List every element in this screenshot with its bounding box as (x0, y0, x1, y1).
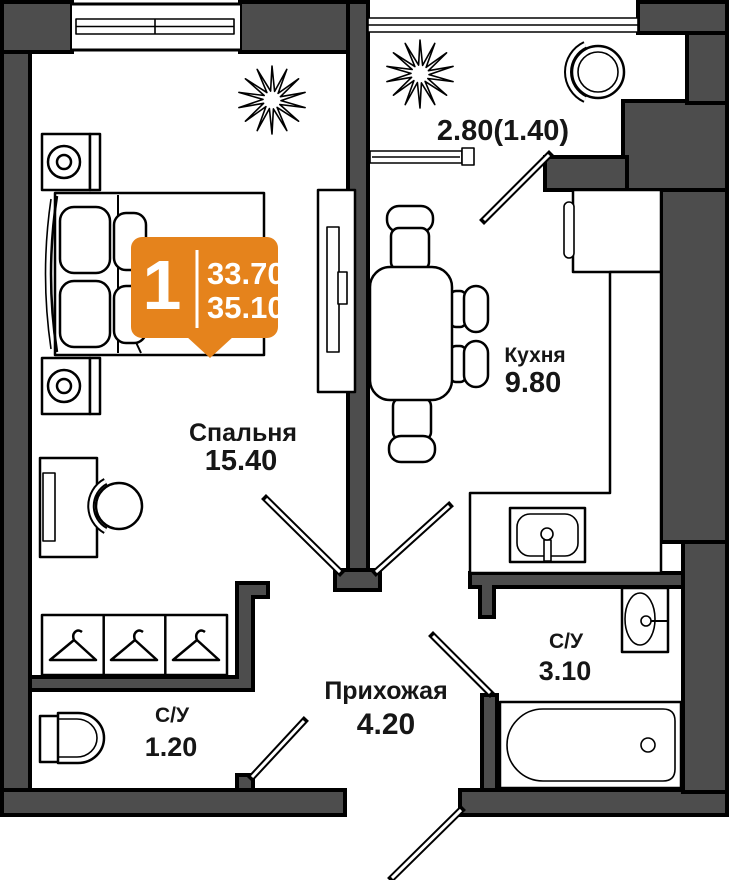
faucet (641, 616, 651, 626)
badge-area-2: 35.10 (207, 290, 285, 325)
room-label-kitchen: Кухня (504, 344, 565, 367)
balcony-door-leaf (484, 155, 549, 220)
plant-icon (387, 40, 453, 108)
wall-segment (661, 188, 727, 542)
bedroom-window (72, 4, 240, 50)
badge-rooms-count: 1 (143, 246, 182, 324)
chair (389, 436, 435, 462)
bathtub (500, 702, 681, 788)
badge-divider (196, 250, 199, 328)
dining-table-set (370, 206, 488, 462)
room-area-balcony: 2.80(1.40) (437, 115, 569, 147)
wall-segment (683, 540, 727, 792)
wall-segment (2, 790, 345, 815)
wall-segment (2, 2, 72, 52)
room-area-hallway: 4.20 (357, 708, 415, 741)
floor-plan: Спальня 15.40 Кухня 9.80 2.80(1.40) С/У … (0, 0, 731, 880)
wall-segment (687, 31, 727, 103)
kitchen-door-leaf (376, 506, 449, 572)
floor-plan-canvas: Спальня 15.40 Кухня 9.80 2.80(1.40) С/У … (0, 0, 731, 880)
room-label-hallway: Прихожая (324, 677, 447, 705)
fridge-handle (564, 202, 574, 258)
balcony-sill (370, 148, 474, 165)
wall-segment (545, 157, 627, 190)
room-area-bedroom: 15.40 (205, 445, 278, 477)
toilet (40, 713, 104, 763)
wall-segment (638, 2, 727, 33)
faucet (544, 540, 551, 561)
bedroom-door-leaf (266, 499, 340, 572)
room-area-bathroom: 3.10 (539, 656, 592, 686)
monitor (43, 473, 55, 541)
balcony-glazing (368, 18, 638, 32)
fridge (564, 190, 661, 272)
chair (391, 228, 429, 270)
nightstand (42, 358, 100, 414)
tv-unit (318, 190, 355, 392)
chair (464, 286, 488, 332)
pillow (60, 207, 110, 273)
chair (393, 398, 431, 440)
lamp-icon (48, 370, 80, 402)
wall-segment (2, 52, 30, 815)
chair-seat (96, 483, 142, 529)
desk-chair (91, 478, 147, 534)
nightstand (42, 134, 100, 190)
washbasin (622, 588, 668, 652)
wall-segment (623, 101, 727, 190)
room-label-wc: С/У (155, 704, 190, 727)
balcony-chair (568, 42, 628, 102)
chair (464, 341, 488, 387)
room-label-bedroom: Спальня (189, 419, 297, 447)
room-area-kitchen: 9.80 (505, 367, 561, 399)
wall-segment (482, 695, 497, 790)
sill-cap (462, 148, 474, 165)
balcony-furniture (387, 40, 628, 108)
badge-area-1: 33.70 (207, 256, 285, 291)
room-area-wc: 1.20 (145, 732, 198, 762)
dining-table (370, 267, 452, 400)
room-label-bathroom: С/У (549, 630, 584, 653)
kitchen-sink (510, 508, 585, 562)
bedroom-furniture (40, 66, 355, 675)
pillow (60, 281, 110, 347)
wardrobe (42, 615, 227, 675)
lamp-icon (48, 146, 80, 178)
wc-door-leaf (252, 721, 304, 777)
plant-icon (239, 66, 305, 134)
entrance-door-leaf (392, 810, 461, 878)
